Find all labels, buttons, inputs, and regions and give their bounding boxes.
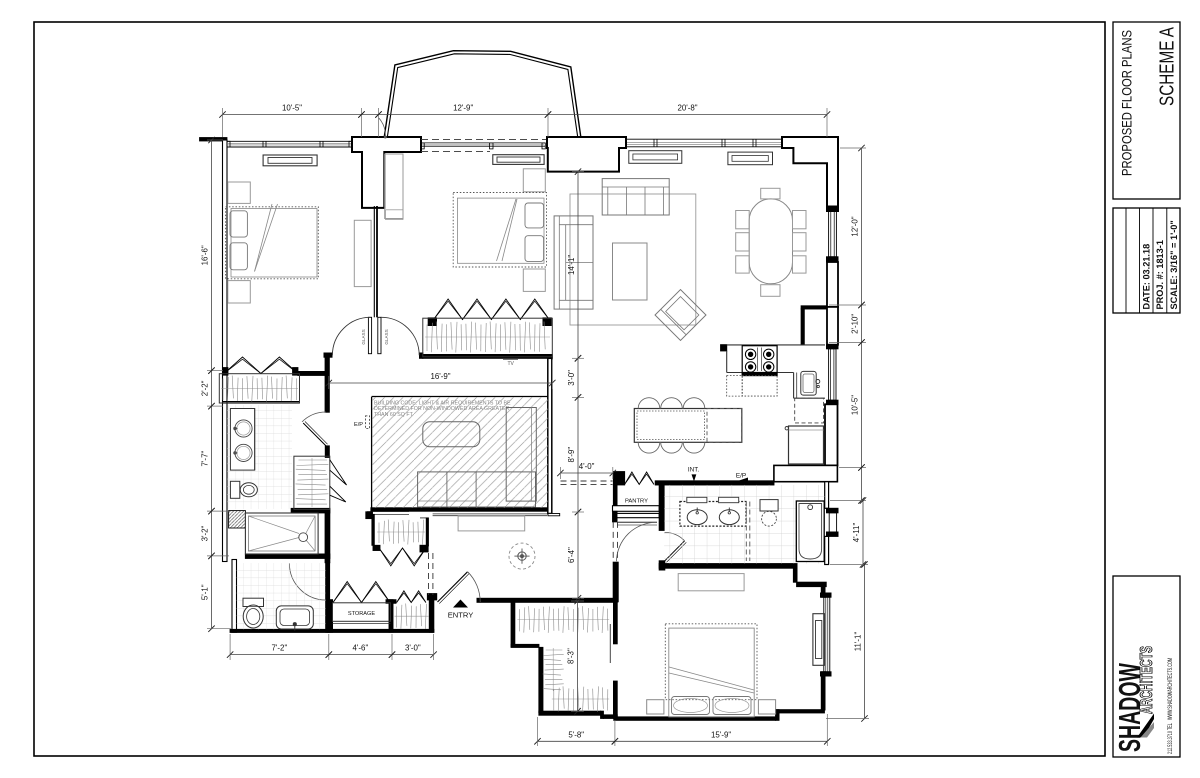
svg-text:12'-9": 12'-9": [453, 104, 473, 113]
svg-text:E/P: E/P: [736, 472, 746, 479]
svg-text:PANTRY: PANTRY: [625, 498, 648, 504]
svg-text:PROJ. #: 1813-1: PROJ. #: 1813-1: [1155, 240, 1165, 309]
svg-text:7'-2": 7'-2": [272, 644, 288, 653]
svg-text:4'-0": 4'-0": [579, 462, 595, 471]
svg-text:INT.: INT.: [688, 467, 700, 474]
svg-text:5'-1": 5'-1": [201, 584, 210, 600]
svg-text:SCALE: 3/16" = 1'-0": SCALE: 3/16" = 1'-0": [1169, 220, 1179, 309]
svg-text:8'-3": 8'-3": [567, 648, 576, 664]
svg-text:ENTRY: ENTRY: [448, 611, 474, 620]
svg-text:212.533.3710 TEL WWW.SHADOWA: 212.533.3710 TEL WWW.SHADOWARCHITECTS.CO…: [1167, 658, 1174, 754]
svg-text:8'-9": 8'-9": [567, 447, 576, 463]
svg-text:PROPOSED FLOOR PLANS: PROPOSED FLOOR PLANS: [1119, 30, 1135, 176]
svg-text:20'-8": 20'-8": [677, 104, 697, 113]
svg-text:2'-2": 2'-2": [201, 380, 210, 396]
svg-text:15'-9": 15'-9": [711, 730, 731, 739]
svg-text:STORAGE: STORAGE: [348, 611, 376, 617]
svg-text:DATE: 03.21.18: DATE: 03.21.18: [1142, 244, 1152, 310]
svg-text:ARCHITECTS: ARCHITECTS: [1136, 646, 1156, 714]
svg-text:TV: TV: [508, 361, 515, 367]
svg-text:10'-5": 10'-5": [851, 395, 860, 415]
svg-text:4'-11": 4'-11": [852, 523, 861, 543]
svg-text:16'-6": 16'-6": [201, 245, 210, 265]
svg-text:11'-1": 11'-1": [854, 632, 863, 652]
svg-text:12'-0": 12'-0": [851, 216, 860, 236]
svg-text:2'-10": 2'-10": [851, 314, 860, 334]
svg-text:3'-2": 3'-2": [201, 525, 210, 541]
svg-text:10'-5": 10'-5": [282, 104, 302, 113]
svg-text:6'-4": 6'-4": [567, 547, 576, 563]
svg-text:SCHEME A: SCHEME A: [1157, 26, 1179, 106]
svg-text:16'-9": 16'-9": [430, 372, 450, 381]
svg-text:7'-7": 7'-7": [201, 451, 210, 467]
svg-text:THAN 60 SQ FT: THAN 60 SQ FT: [374, 412, 414, 418]
svg-text:14'-1": 14'-1": [567, 255, 576, 275]
svg-text:GLASS: GLASS: [384, 329, 389, 344]
svg-text:E/P: E/P: [354, 422, 363, 428]
svg-text:4'-6": 4'-6": [353, 644, 369, 653]
svg-text:GLASS: GLASS: [361, 329, 366, 344]
svg-text:3'-0": 3'-0": [567, 370, 576, 386]
svg-text:5'-8": 5'-8": [568, 730, 584, 739]
svg-text:3'-0": 3'-0": [405, 644, 421, 653]
